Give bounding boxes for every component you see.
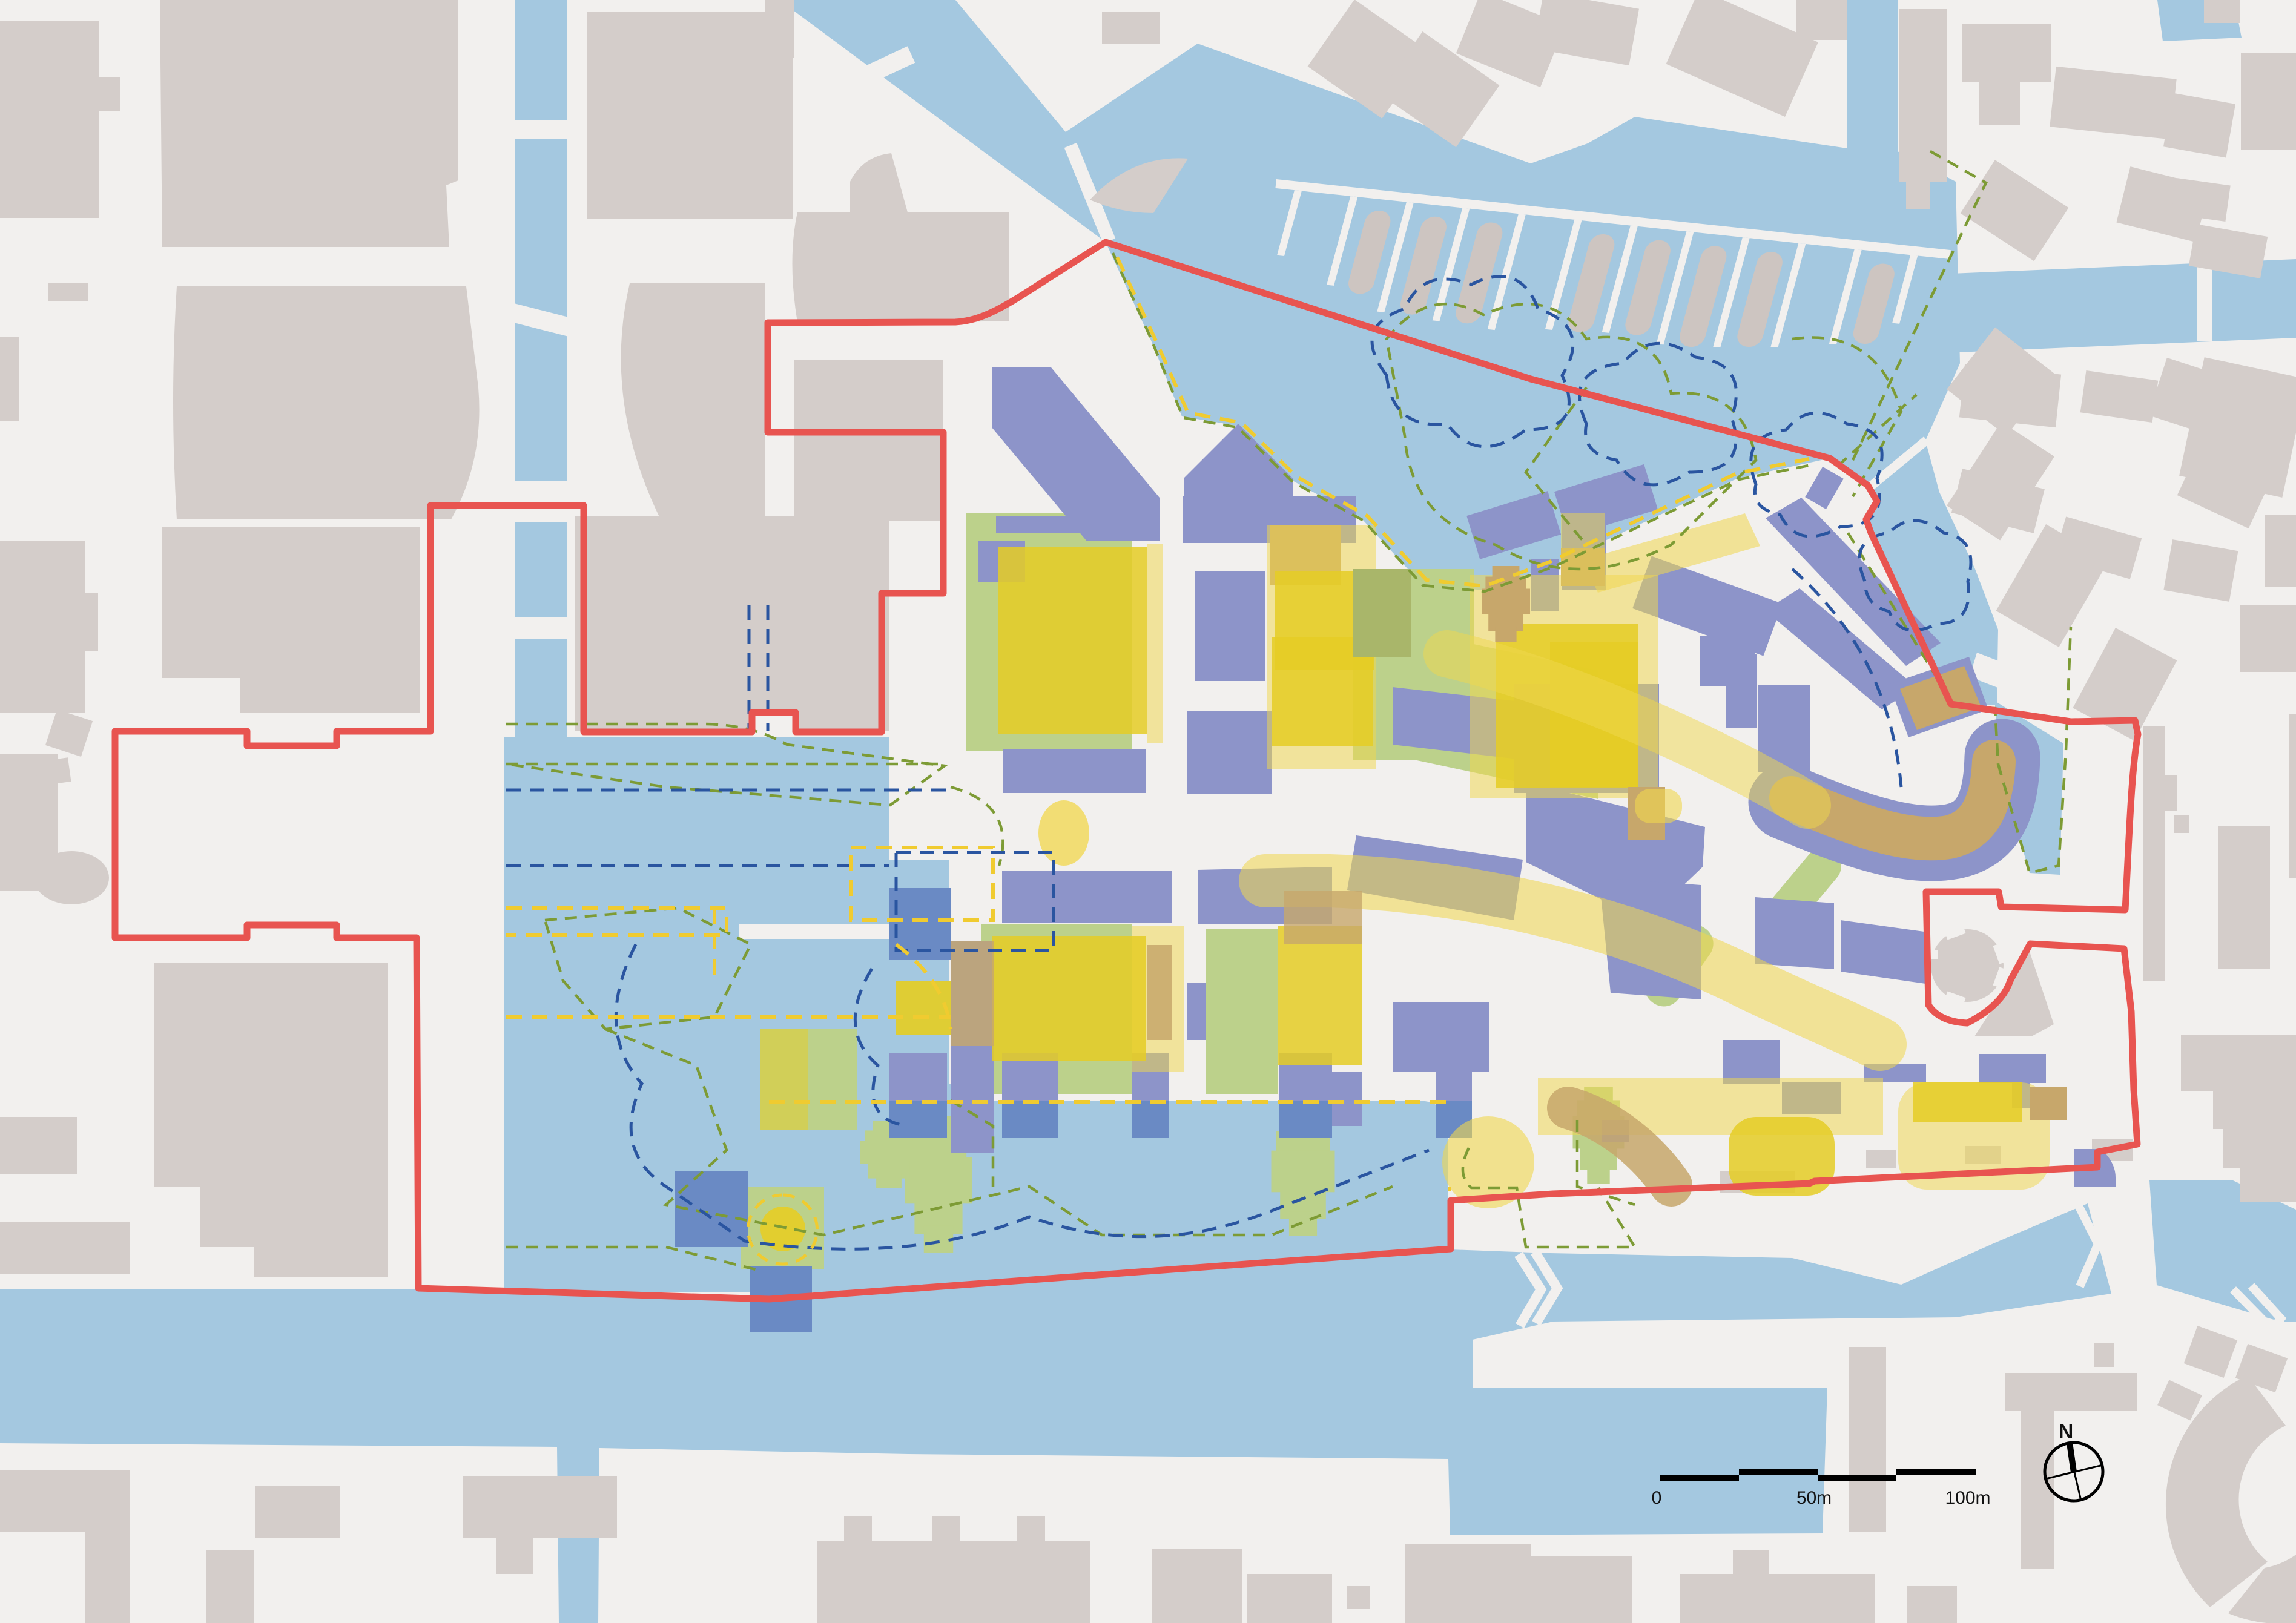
svg-text:0: 0 — [1652, 1488, 1662, 1508]
svg-text:N: N — [2059, 1420, 2074, 1443]
svg-text:100m: 100m — [1945, 1488, 1990, 1508]
svg-text:50m: 50m — [1796, 1488, 1832, 1508]
